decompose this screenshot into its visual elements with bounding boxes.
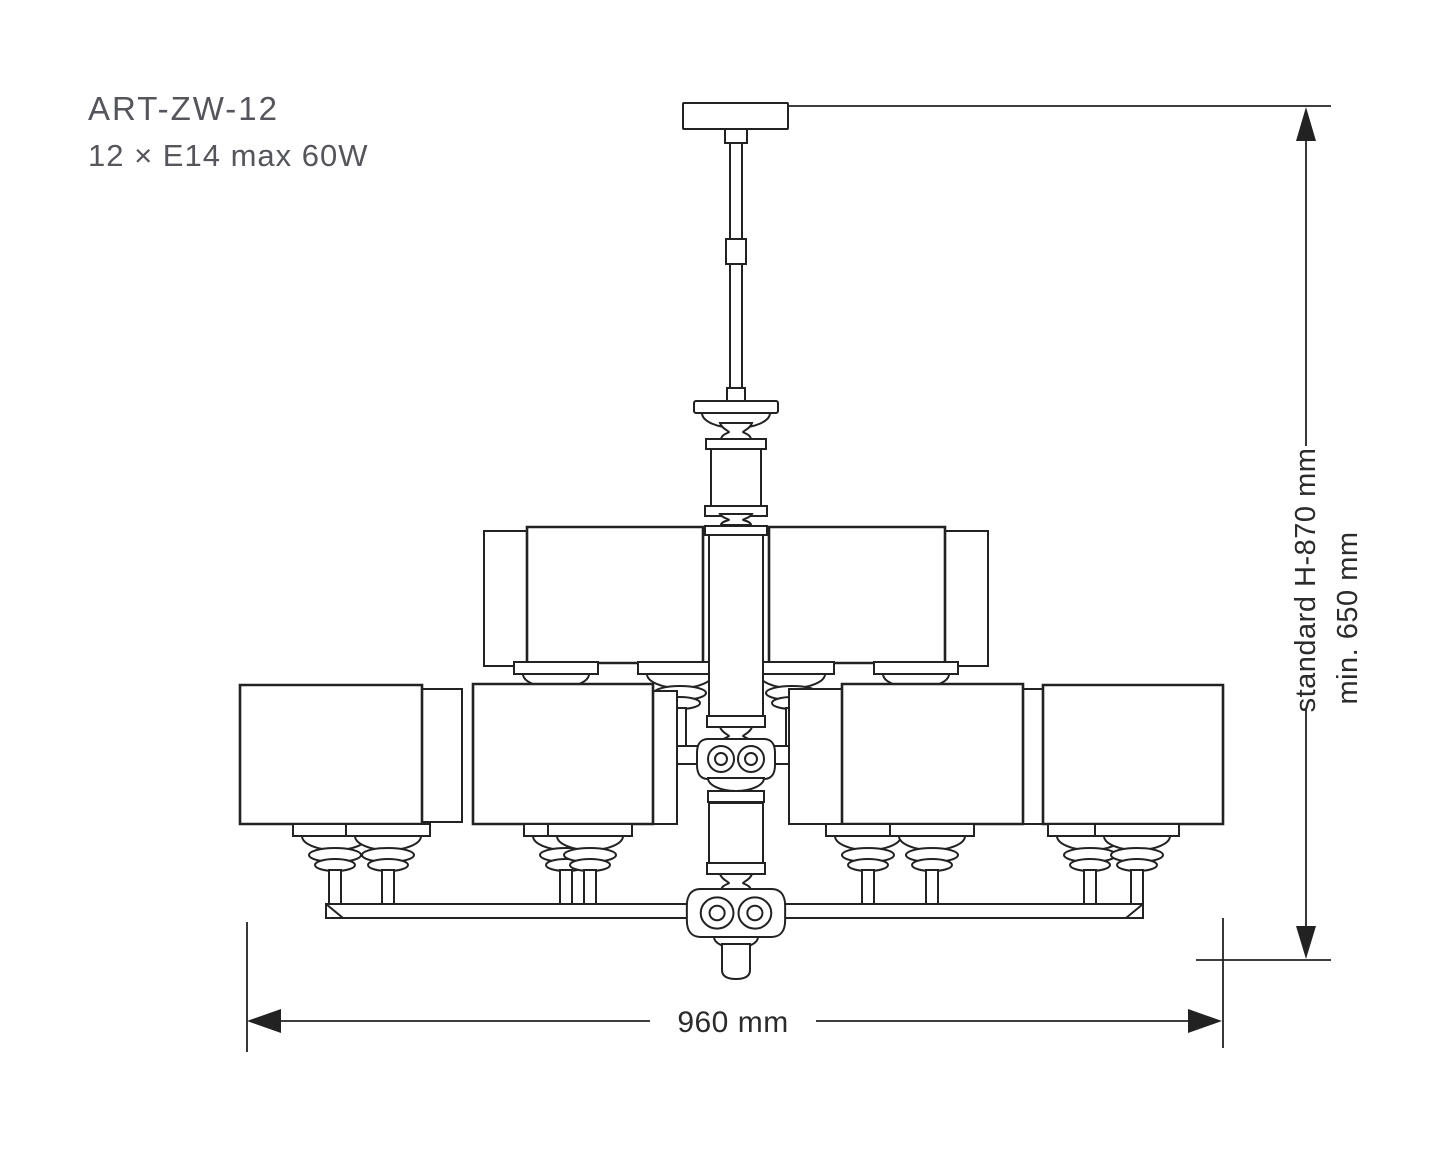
lamp-spec-label: 12 × E14 max 60W bbox=[88, 138, 369, 173]
center-column-lower bbox=[687, 803, 785, 979]
chandelier-drawing bbox=[240, 103, 1223, 979]
bottom-finial bbox=[722, 944, 750, 979]
ceiling-canopy bbox=[683, 103, 788, 129]
rod-coupler bbox=[726, 239, 746, 264]
arrow-left-icon bbox=[247, 1009, 281, 1033]
header-labels: ART-ZW-12 12 × E14 max 60W bbox=[88, 90, 369, 173]
arrow-up-icon bbox=[1296, 107, 1316, 141]
lower-hub bbox=[687, 889, 785, 937]
hanging-rod bbox=[730, 143, 742, 389]
height-standard-label: standard H-870 mm bbox=[1290, 448, 1322, 713]
spec-sheet-page: ART-ZW-12 12 × E14 max 60W bbox=[0, 0, 1448, 1169]
height-min-label: min. 650 mm bbox=[1332, 531, 1364, 704]
arrow-right-icon bbox=[1188, 1009, 1222, 1033]
width-label: 960 mm bbox=[677, 1006, 788, 1039]
product-code-label: ART-ZW-12 bbox=[88, 90, 279, 127]
technical-drawing: ART-ZW-12 12 × E14 max 60W bbox=[0, 0, 1448, 1169]
upper-hub bbox=[697, 739, 775, 779]
top-disc bbox=[694, 401, 778, 413]
arrow-down-icon bbox=[1296, 926, 1316, 959]
